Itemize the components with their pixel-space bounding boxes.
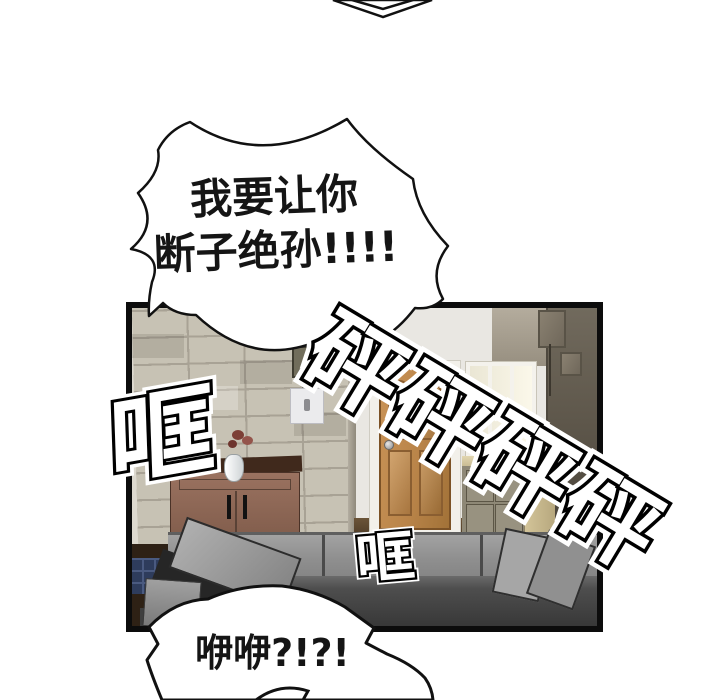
sfx-clang-left: 哐 哐 哐 <box>106 345 218 509</box>
comic-page: 我要让你 断子绝孙!!!! 咿咿?!?! 砰砰砰砰 砰砰砰砰 砰砰砰砰 哐 哐 … <box>0 0 720 700</box>
tile-shade <box>240 360 292 384</box>
sfx-fill-layer: 哐 <box>353 524 417 594</box>
cabinet-handle <box>227 495 231 519</box>
bottom-bubble-text: 咿咿?!?! <box>190 622 355 677</box>
flower <box>242 436 253 445</box>
shout-line-1: 我要让你 <box>148 166 400 228</box>
sfx-clang-middle: 哐 哐 哐 <box>352 511 418 597</box>
top-edge-burst-tip <box>333 0 432 17</box>
speaker-stand <box>549 344 551 396</box>
top-edge-burst-inner <box>352 0 413 9</box>
flower <box>228 440 237 448</box>
sfx-fill-layer: 哐 <box>107 368 218 504</box>
speaker <box>538 310 566 348</box>
shout-line-2: 断子绝孙!!!! <box>150 219 402 281</box>
vase <box>224 454 244 482</box>
cabinet-handle <box>243 495 247 519</box>
bottom-bubble-notch <box>256 688 308 700</box>
speaker <box>560 352 582 376</box>
shout-bubble-text: 我要让你 断子绝孙!!!! <box>148 166 402 282</box>
